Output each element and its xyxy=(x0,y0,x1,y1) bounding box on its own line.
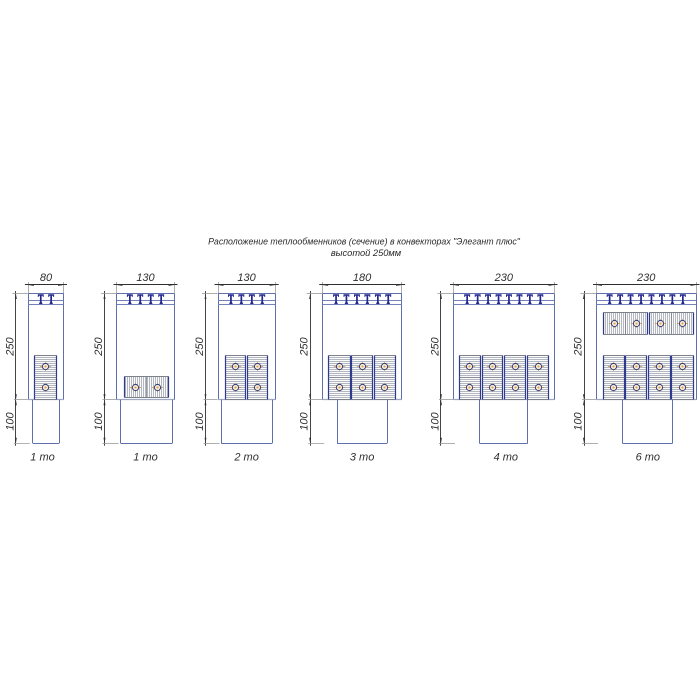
svg-text:1 mo: 1 mo xyxy=(30,452,54,464)
svg-text:180: 180 xyxy=(353,272,372,284)
svg-text:2 mo: 2 mo xyxy=(233,452,258,464)
svg-text:250: 250 xyxy=(4,337,16,357)
svg-text:250: 250 xyxy=(299,337,311,357)
svg-text:250: 250 xyxy=(573,337,585,357)
svg-text:100: 100 xyxy=(93,411,105,430)
svg-text:высотой 250мм: высотой 250мм xyxy=(331,248,402,258)
svg-text:Расположение теплообменников (: Расположение теплообменников (сечение) в… xyxy=(208,237,521,247)
svg-text:4 mo: 4 mo xyxy=(494,452,518,464)
svg-text:250: 250 xyxy=(194,337,206,357)
svg-text:6 mo: 6 mo xyxy=(636,452,660,464)
svg-text:80: 80 xyxy=(40,272,53,284)
svg-text:100: 100 xyxy=(430,411,442,430)
svg-text:100: 100 xyxy=(299,411,311,430)
svg-text:230: 230 xyxy=(494,272,514,284)
svg-text:100: 100 xyxy=(194,411,206,430)
svg-text:250: 250 xyxy=(430,337,442,357)
svg-text:3 mo: 3 mo xyxy=(350,452,374,464)
svg-text:230: 230 xyxy=(636,272,656,284)
svg-text:1 mo: 1 mo xyxy=(133,452,157,464)
svg-text:130: 130 xyxy=(136,272,155,284)
svg-text:100: 100 xyxy=(573,411,585,430)
svg-text:250: 250 xyxy=(93,337,105,357)
svg-text:130: 130 xyxy=(237,272,256,284)
svg-text:100: 100 xyxy=(4,411,16,430)
